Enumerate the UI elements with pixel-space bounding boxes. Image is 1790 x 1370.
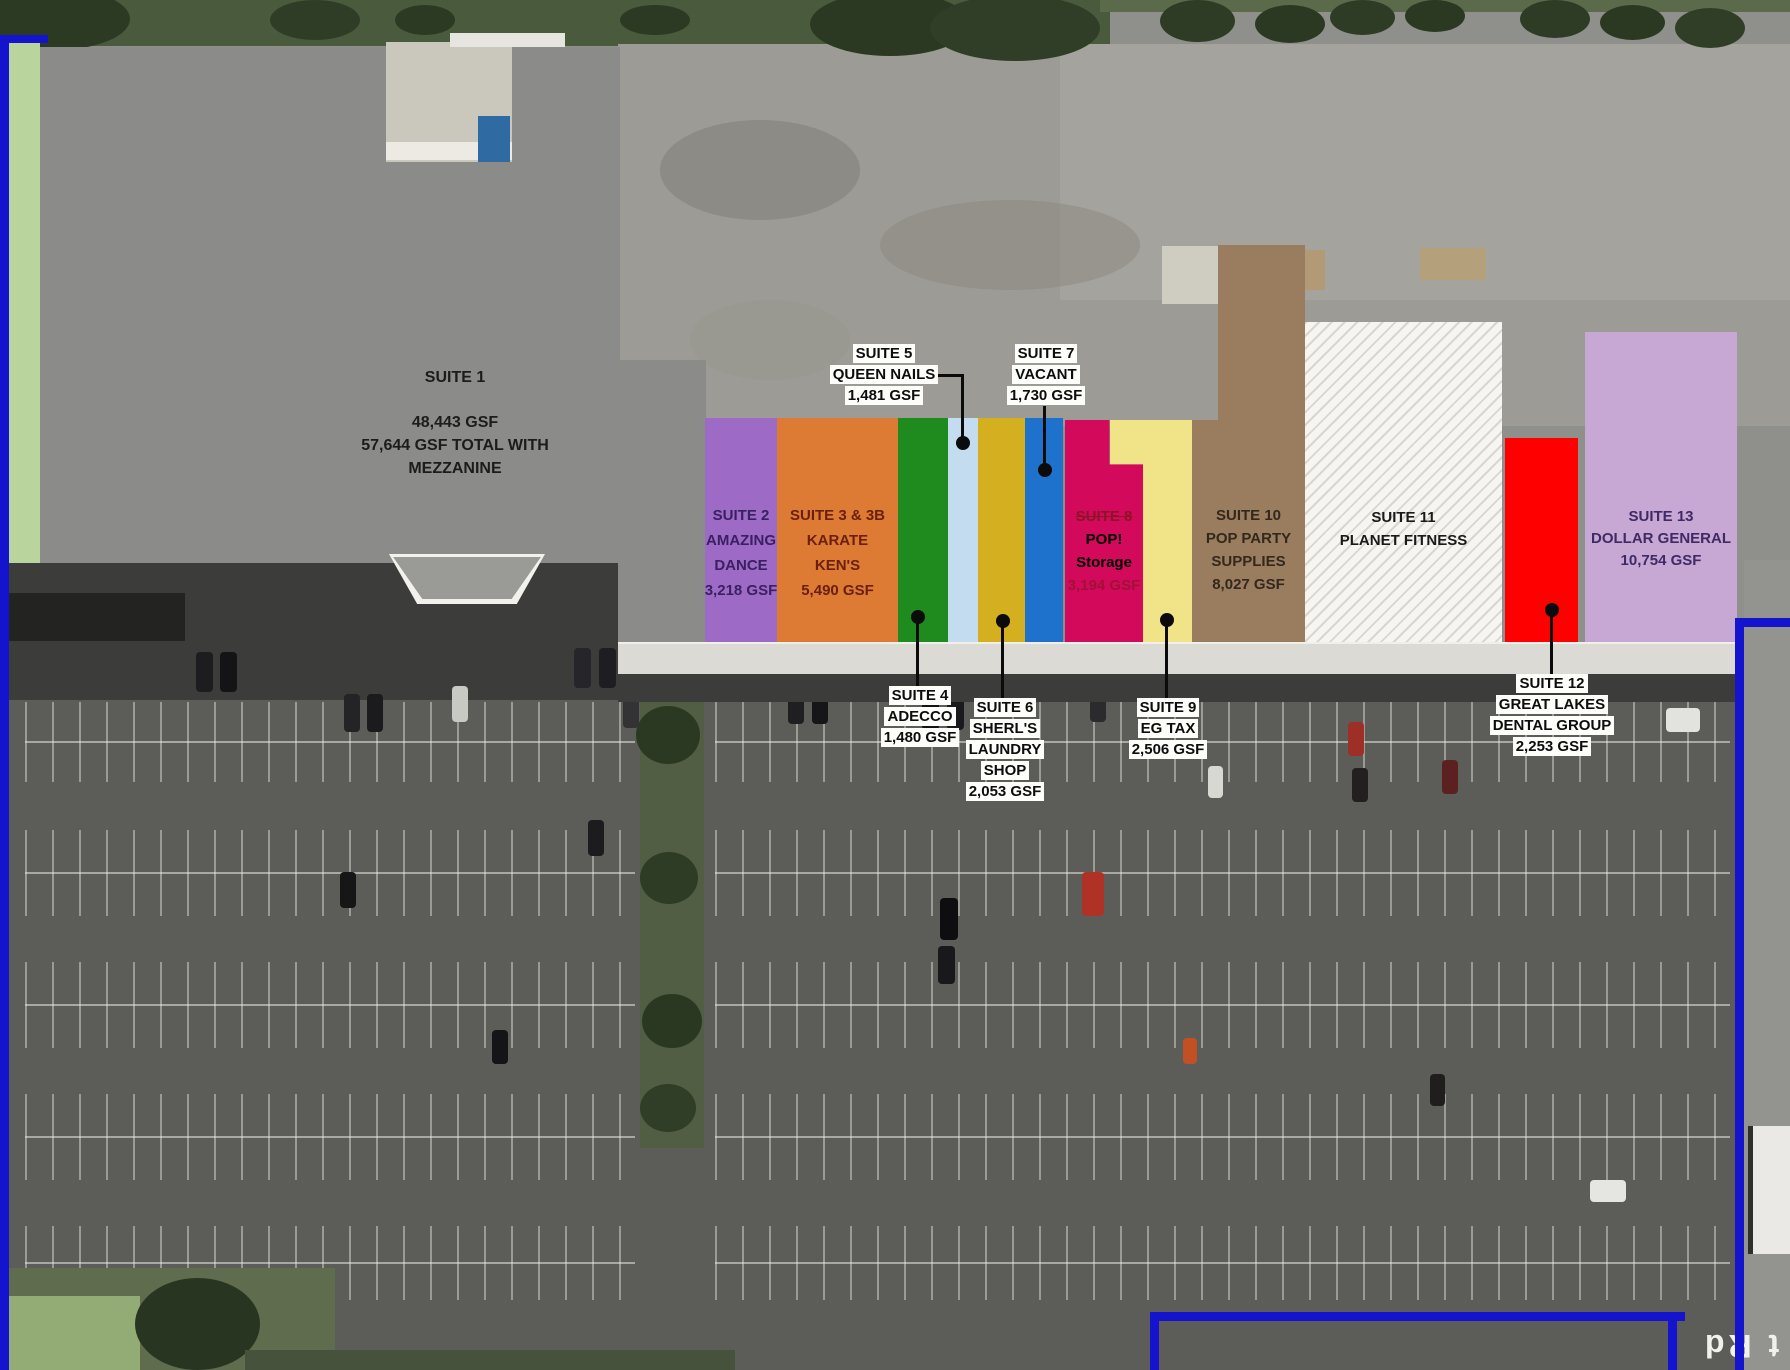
tree-blob <box>1255 5 1325 43</box>
suite-1-block <box>618 360 706 642</box>
suite-1b-block <box>8 42 40 164</box>
suite-3-label: SUITE 3 & 3B KARATE KEN'S 5,490 GSF <box>777 503 898 603</box>
car <box>588 820 604 856</box>
car <box>367 694 383 732</box>
tree-blob <box>640 1084 696 1132</box>
property-line-bottom-v2 <box>1668 1312 1677 1370</box>
suite-5-block <box>948 418 978 642</box>
tree-blob <box>1600 5 1665 40</box>
yard-stain <box>660 120 860 220</box>
suite-1-block <box>512 47 620 563</box>
car <box>1590 1180 1626 1202</box>
suite-10-label: SUITE 10 POP PARTY SUPPLIES 8,027 GSF <box>1192 504 1305 596</box>
suite-2-label: SUITE 2 AMAZING DANCE 3,218 GSF <box>703 503 779 603</box>
car <box>938 946 955 984</box>
suite-1-label: SUITE 1 48,443 GSF 57,644 GSF TOTAL WITH… <box>330 366 580 480</box>
car <box>1183 1038 1197 1064</box>
callout-line <box>1043 406 1046 466</box>
parking-stalls <box>715 1094 1730 1180</box>
suite-9-callout: SUITE 9 EG TAX 2,506 GSF <box>1088 696 1248 759</box>
suite-11-block <box>1305 322 1502 642</box>
suite-12-block <box>1505 438 1578 642</box>
parking-stalls <box>25 830 635 916</box>
tree-blob <box>642 994 702 1048</box>
tree-blob <box>620 5 690 35</box>
building-bottom-right <box>1748 1126 1790 1254</box>
property-line-left <box>0 35 9 1370</box>
parking-stalls <box>25 1094 635 1180</box>
car <box>452 686 468 722</box>
callout-line <box>1001 624 1004 700</box>
car <box>1442 760 1458 794</box>
suite-13-label: SUITE 13 DOLLAR GENERAL 10,754 GSF <box>1581 506 1741 572</box>
car <box>599 648 616 688</box>
suite-1-block <box>386 162 512 563</box>
suite-10-tower <box>1218 245 1305 422</box>
callout-dot <box>1545 603 1559 617</box>
tree-blob <box>135 1278 260 1370</box>
truck <box>1082 872 1104 916</box>
callout-dot <box>1038 463 1052 477</box>
car <box>574 648 591 688</box>
grass-light <box>0 1296 140 1370</box>
car <box>1348 722 1364 756</box>
callout-line <box>1550 612 1553 675</box>
tree-blob <box>636 706 700 764</box>
road-shadow <box>0 593 185 641</box>
parking-stalls <box>25 702 635 782</box>
suite-6-block <box>978 418 1025 642</box>
callout-dot <box>996 614 1010 628</box>
car <box>1666 708 1700 732</box>
suite-1-block <box>40 47 386 563</box>
tree-blob <box>1520 0 1590 38</box>
property-line-right-stub <box>1735 618 1790 627</box>
yard-stain <box>880 200 1140 290</box>
callout-line <box>1165 623 1168 700</box>
suite-6-callout: SUITE 6 SHERL'S LAUNDRY SHOP 2,053 GSF <box>925 696 1085 801</box>
car <box>1208 766 1223 798</box>
parking-stalls <box>25 962 635 1048</box>
dumpster <box>478 116 510 162</box>
callout-dot <box>911 610 925 624</box>
suite-4-block <box>898 418 948 642</box>
property-line-bottom-v1 <box>1150 1312 1159 1370</box>
tree-blob <box>1675 8 1745 48</box>
suite-12-callout: SUITE 12 GREAT LAKES DENTAL GROUP 2,253 … <box>1472 672 1632 756</box>
suite-7-callout: SUITE 7 VACANT 1,730 GSF <box>966 342 1126 405</box>
car <box>1352 768 1368 802</box>
car <box>940 898 958 940</box>
suite-13-block <box>1585 332 1737 642</box>
car <box>196 652 213 692</box>
car <box>1430 1074 1445 1106</box>
parking-stalls <box>715 962 1730 1048</box>
property-line-top-left <box>0 35 48 43</box>
property-line-right <box>1735 618 1744 1370</box>
tree-blob <box>395 5 455 35</box>
car <box>492 1030 508 1064</box>
site-plan-canvas: SUITE 1B VACANT 30,442 GSF 32,740 GSF TO… <box>0 0 1790 1370</box>
rooftop-unit <box>450 33 565 47</box>
landscape-strip <box>640 698 704 1148</box>
pallet-stack <box>1420 248 1486 280</box>
callout-dot <box>956 436 970 450</box>
tree-blob <box>270 0 360 40</box>
tree-blob <box>1330 0 1395 35</box>
grass-sliver-bottom <box>245 1350 735 1370</box>
parking-stalls <box>715 830 1730 916</box>
car <box>340 872 356 908</box>
parking-stalls <box>715 1226 1730 1300</box>
suite-8-label: SUITE 8 POP! Storage 3,194 GSF <box>1063 505 1145 597</box>
car <box>344 694 360 732</box>
suite-11-label: SUITE 11 PLANET FITNESS <box>1305 506 1502 552</box>
property-line-bottom-h <box>1150 1312 1685 1321</box>
tree-blob <box>1160 0 1235 42</box>
tree-blob <box>640 852 698 904</box>
tree-blob <box>1405 0 1465 32</box>
callout-line <box>916 620 919 688</box>
concrete-pad <box>1162 246 1222 304</box>
sidewalk <box>618 642 1740 674</box>
car <box>220 652 237 692</box>
callout-dot <box>1160 613 1174 627</box>
suite-5-callout: SUITE 5 QUEEN NAILS 1,481 GSF <box>804 342 964 405</box>
